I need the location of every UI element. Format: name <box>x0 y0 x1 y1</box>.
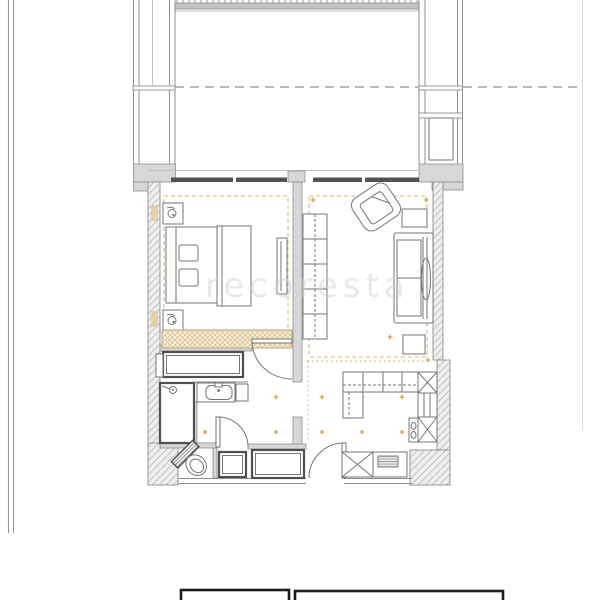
side-table-top <box>402 209 427 227</box>
pier-panel <box>429 118 453 160</box>
side-table-bottom <box>403 335 425 354</box>
wall-south <box>178 479 412 484</box>
watermark-text: recoresta <box>205 266 405 306</box>
kitchen-counter <box>343 372 418 418</box>
wall-niche-top <box>151 205 158 221</box>
wall-wc-divider <box>213 448 217 478</box>
wall-east-lower <box>437 360 450 450</box>
bath-cabinet <box>236 384 248 401</box>
title-block-box-left <box>181 590 289 600</box>
nightstand-top <box>163 203 183 224</box>
balcony <box>133 0 580 191</box>
pier-step <box>134 182 149 191</box>
railing-ticks <box>176 0 418 3</box>
headboard <box>166 227 176 303</box>
hall-closet <box>156 352 243 377</box>
pillow <box>179 245 198 261</box>
washing-machine <box>219 452 246 477</box>
wall-corner-se <box>410 450 450 485</box>
entry-door <box>309 443 346 478</box>
pier-division-2 <box>419 113 463 118</box>
faucet-dot <box>217 389 220 392</box>
door-leaf <box>216 417 220 447</box>
closet-side-panel <box>156 354 163 377</box>
window-wall-north <box>171 171 419 182</box>
pier-footing <box>419 164 463 182</box>
pier-division <box>133 86 175 90</box>
pier-division <box>419 86 463 90</box>
kitchen-bottom-cabinets <box>342 452 407 477</box>
balcony-railing <box>175 3 419 9</box>
bathroom-door <box>216 417 248 447</box>
vanity-sink <box>197 383 235 402</box>
door-swing-icon <box>218 417 248 447</box>
floor-plan-canvas: recoresta <box>0 0 600 600</box>
hob-icon <box>378 456 398 467</box>
window-mullion-pier <box>288 171 305 182</box>
sink-icon <box>206 386 232 400</box>
balcony-left-pier <box>133 0 176 191</box>
door-leaf <box>252 339 292 343</box>
title-block <box>181 590 503 600</box>
pier-footing <box>134 164 176 182</box>
nightstand-bottom <box>163 310 183 331</box>
pillow <box>179 269 198 286</box>
armchair-icon <box>348 180 404 235</box>
wall-west <box>148 182 160 485</box>
title-block-box-right <box>295 591 503 600</box>
balcony-right-pier <box>419 0 463 190</box>
entry-cabinet <box>252 450 304 478</box>
wall-east-upper <box>433 182 443 360</box>
shower-icon <box>160 383 194 443</box>
wall-hall-lower <box>293 417 302 448</box>
wall-entry-north <box>248 444 306 449</box>
wall-niche-bottom <box>151 311 158 327</box>
door-swing-icon <box>309 443 344 478</box>
